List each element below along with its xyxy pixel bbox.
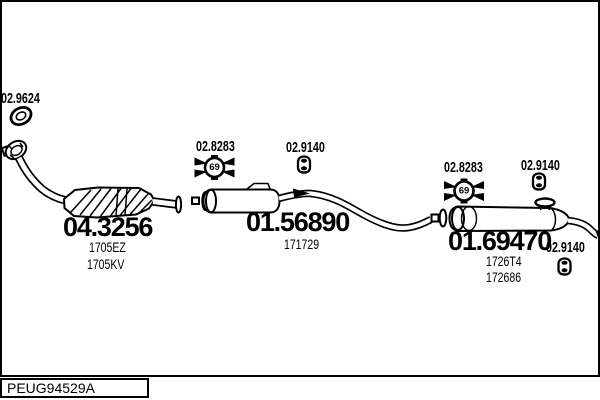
- part-number-hanger-mid: 02.9140: [286, 141, 325, 156]
- part-number-catalytic: 04.3256: [63, 214, 152, 241]
- part-number-rear-silencer: 01.69470: [448, 228, 551, 255]
- catalog-code: PEUG94529A: [7, 380, 95, 396]
- vehicle-code-1: 1705EZ: [89, 240, 126, 254]
- vehicle-code-4: 1726T4: [486, 254, 522, 268]
- vehicle-code-3: 171729: [284, 237, 319, 251]
- rubber-hanger-icon-tail: [559, 259, 571, 275]
- inlet-flange-icon: [2, 137, 30, 163]
- part-number-hanger-rear: 02.9140: [521, 159, 560, 174]
- catalog-code-box: PEUG94529A: [0, 378, 149, 398]
- vehicle-code-5: 172686: [486, 270, 521, 284]
- vehicle-code-2: 1705KV: [87, 257, 124, 271]
- front-pipe: [19, 158, 66, 201]
- rubber-hanger-icon-rear: [533, 174, 545, 190]
- cat-outlet-flange: [176, 197, 181, 213]
- part-number-centre-silencer: 01.56890: [246, 209, 349, 236]
- part-number-clamp-rear: 02.8283: [444, 161, 483, 176]
- exhaust-parts-diagram-page: 69 69: [0, 0, 600, 400]
- clamp-size-label: 69: [459, 186, 470, 197]
- rubber-hanger-icon-mid: [298, 157, 310, 173]
- part-number-gasket: 02.9624: [1, 92, 40, 107]
- pipe-clamp-icon-front: 69: [195, 155, 235, 180]
- diagram-canvas: 69 69: [0, 0, 600, 377]
- part-number-hanger-tail: 02.9140: [546, 241, 585, 256]
- pipe-clamp-icon-rear: 69: [444, 179, 484, 204]
- clamp-size-label: 69: [209, 162, 220, 173]
- part-number-clamp-front: 02.8283: [196, 140, 235, 155]
- exhaust-drawing: 69 69: [2, 2, 598, 375]
- tail-pipe: [568, 221, 598, 240]
- gasket-ring-icon: [8, 104, 34, 128]
- silencer-bracket: [247, 184, 270, 190]
